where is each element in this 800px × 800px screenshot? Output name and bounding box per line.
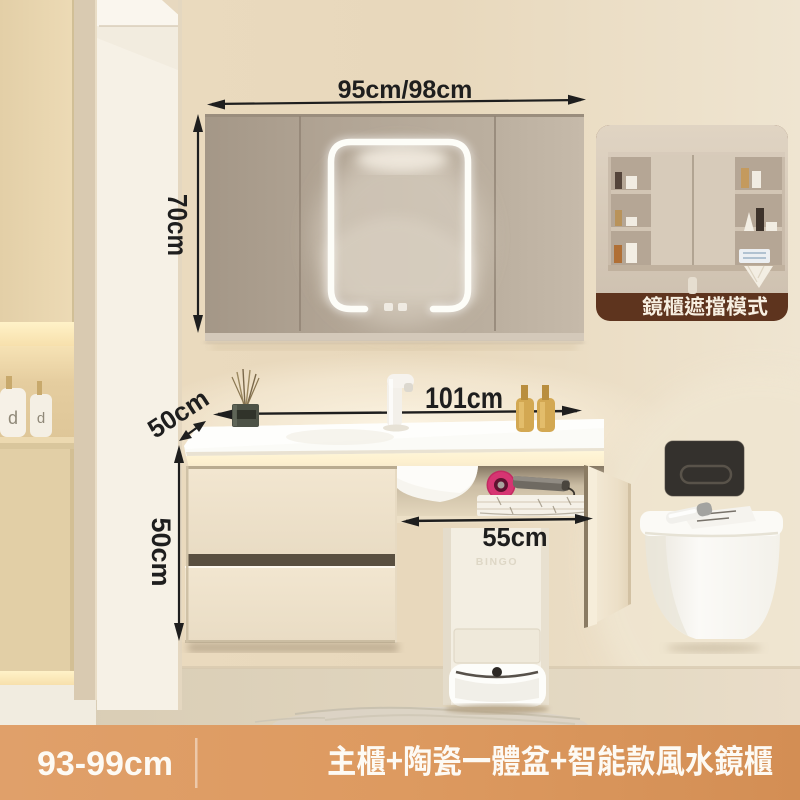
svg-text:101cm: 101cm — [425, 382, 503, 415]
svg-text:55cm: 55cm — [482, 524, 547, 552]
svg-text:93-99cm: 93-99cm — [37, 745, 173, 783]
svg-text:BINGO: BINGO — [476, 556, 518, 568]
svg-text:d: d — [37, 410, 45, 427]
svg-text:95cm/98cm: 95cm/98cm — [338, 76, 473, 104]
svg-text:d: d — [8, 408, 18, 428]
svg-text:50cm: 50cm — [146, 517, 176, 586]
svg-text:70cm: 70cm — [162, 194, 193, 256]
